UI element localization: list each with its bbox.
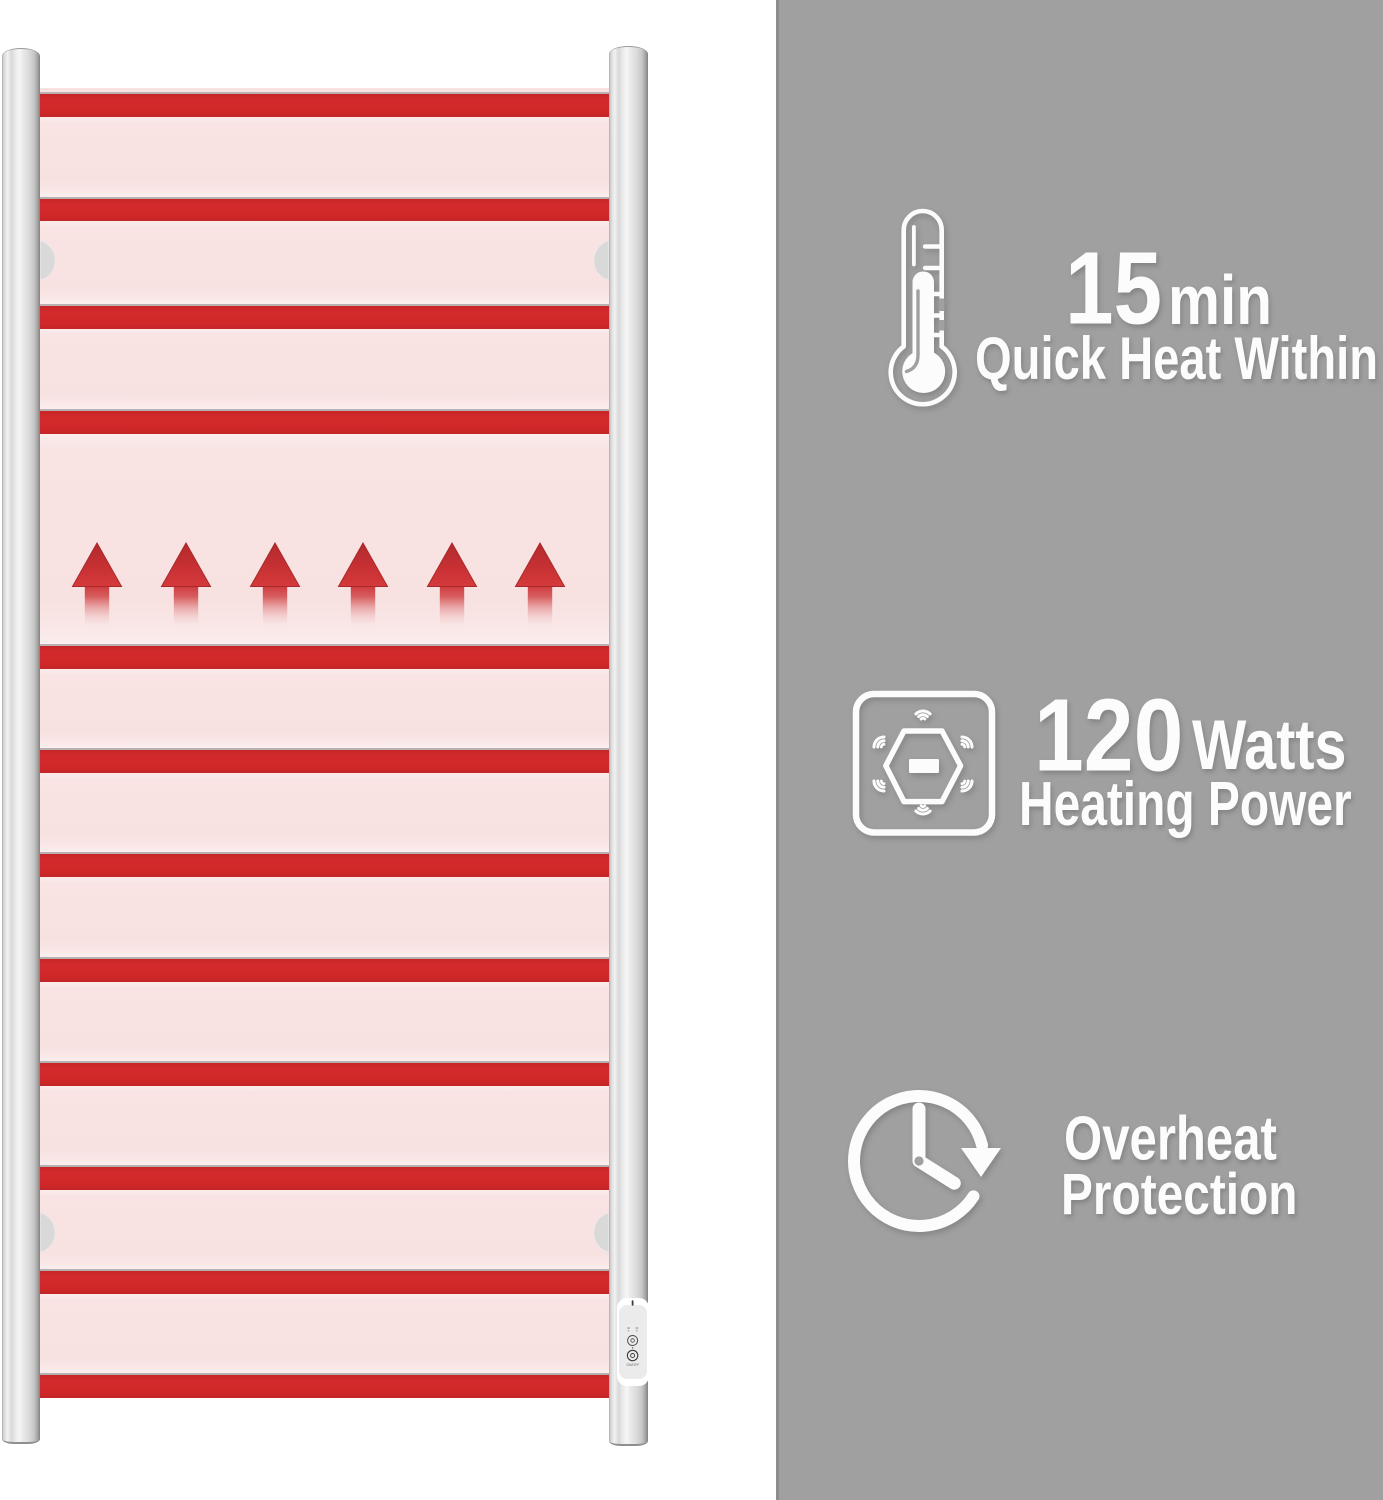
svg-text:ON/OFF: ON/OFF <box>626 1363 639 1367</box>
